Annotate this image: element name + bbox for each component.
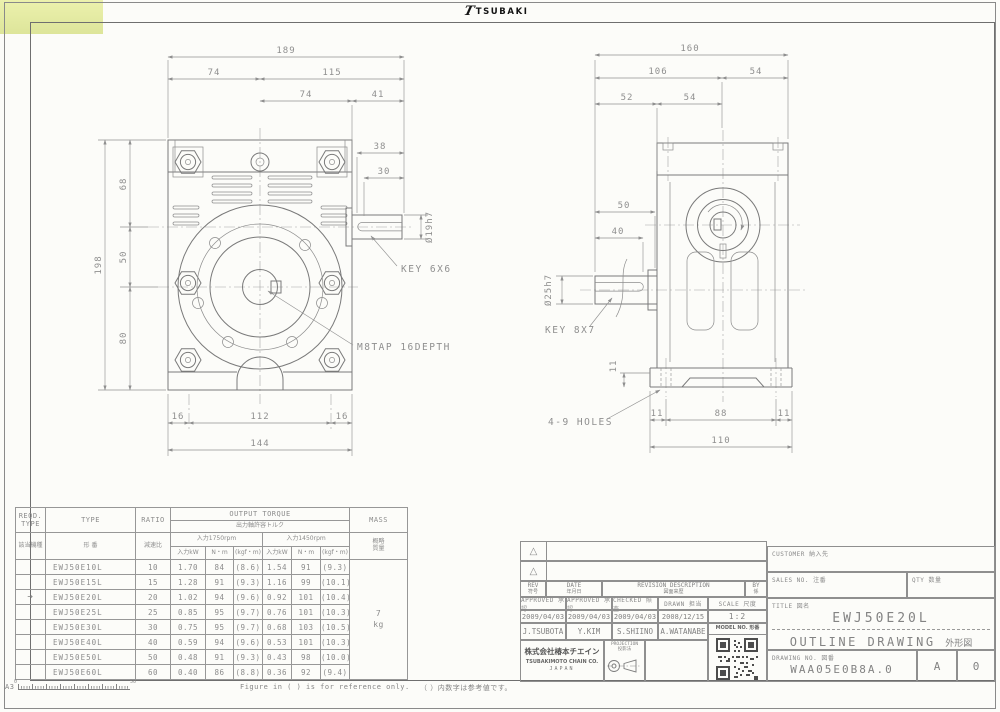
kw-cell: 0.76	[263, 605, 292, 620]
header-ratio-ja: 減速比	[136, 533, 171, 560]
dim-label: 160	[680, 44, 699, 54]
header-mass-ja: 概略 質量	[350, 533, 408, 560]
tsubaki-logo-mark-icon: T	[462, 4, 475, 19]
ratio-cell: 20	[136, 590, 171, 605]
kw-cell: 0.48	[171, 650, 206, 665]
revision-mark-cell: △	[520, 561, 547, 581]
model-cell: EWJ50E60L	[46, 665, 136, 680]
company-cell: 株式会社椿本チエイン TSUBAKIMOTO CHAIN CO. JAPAN	[520, 640, 604, 682]
mass-cell: 7kg	[350, 560, 408, 680]
dim-label: 198	[94, 255, 104, 274]
model-cell: EWJ50E50L	[46, 650, 136, 665]
drawing-sheet: T TSUBAKI	[0, 0, 1000, 712]
row-marker	[16, 560, 46, 575]
nm-cell: 98	[292, 650, 321, 665]
drawing-no-label: DRAWING NO. 図番	[768, 651, 916, 662]
dim-label: 11	[609, 360, 619, 373]
shaft-diameter-label: Ø25h7	[543, 274, 554, 306]
nm-cell: 101	[292, 635, 321, 650]
header-nm: N・m	[206, 547, 234, 560]
header-output-torque: OUTPUT TORQUE	[171, 508, 350, 521]
tap-label: M8TAP 16DEPTH	[357, 342, 451, 353]
kgfm-cell: (10.1)	[321, 575, 350, 590]
dim-label: 40	[612, 227, 625, 237]
empty-cell	[645, 640, 708, 682]
projection-label-ja: 投影法	[618, 647, 632, 652]
third-angle-projection-icon	[605, 653, 642, 677]
dim-label: 16	[336, 412, 349, 422]
dim-label: 106	[648, 67, 667, 77]
kw-cell: 0.40	[171, 665, 206, 680]
customer-cell: CUSTOMER 納入先	[767, 546, 995, 572]
drawing-title-ja: 外形図	[945, 639, 972, 649]
header-input-1750: 入力1750rpm	[171, 533, 263, 547]
sales-no-label: SALES NO. 注番	[768, 573, 906, 584]
kw-cell: 0.53	[263, 635, 292, 650]
nm-cell: 91	[206, 575, 234, 590]
sheet-rev-number-cell: 0	[957, 650, 995, 682]
dim-label: 189	[276, 46, 295, 56]
dim-label: 52	[621, 93, 634, 103]
header-output-torque-ja: 出力軸許容トルク	[171, 521, 350, 533]
revision-triangle-icon: △	[521, 562, 546, 580]
revision-mark-cell: △	[520, 541, 547, 561]
header-type-ja: 形 番	[46, 533, 136, 560]
kgfm-cell: (9.3)	[234, 575, 263, 590]
dim-label: 74	[208, 68, 221, 78]
model-cell: EWJ50E25L	[46, 605, 136, 620]
nm-cell: 103	[292, 620, 321, 635]
nm-cell: 86	[206, 665, 234, 680]
header-nm: N・m	[292, 547, 321, 560]
row-marker	[16, 620, 46, 635]
nm-cell: 91	[292, 560, 321, 575]
nm-cell: 91	[206, 650, 234, 665]
row-marker-arrow-icon: →	[16, 590, 46, 605]
kgfm-cell: (9.3)	[234, 650, 263, 665]
model-cell: EWJ50E40L	[46, 635, 136, 650]
dim-label: 50	[618, 201, 631, 211]
kw-cell: 0.59	[171, 635, 206, 650]
kgfm-cell: (9.6)	[234, 590, 263, 605]
by-header-cell: BY係	[745, 581, 767, 597]
checked-date-cell: 2009/04/03	[612, 610, 658, 623]
model-cell: EWJ50E15L	[46, 575, 136, 590]
header-kw: 入力kW	[171, 547, 206, 560]
shaft-diameter-label: Ø19h7	[424, 211, 435, 243]
kgfm-cell: (9.7)	[234, 605, 263, 620]
model-cell: EWJ50E20L	[46, 590, 136, 605]
table-row: EWJ50E50L 50 0.48 91 (9.3) 0.43 98 (10.0…	[16, 650, 408, 665]
ruler-zero-label: 0	[14, 679, 17, 685]
model-no-cell: MODEL NO. 形番	[708, 623, 767, 682]
customer-label: CUSTOMER 納入先	[768, 547, 994, 558]
dim-label: 74	[300, 90, 313, 100]
nm-cell: 101	[292, 590, 321, 605]
input-shaft	[346, 208, 402, 246]
output-torque-table: REQD. TYPE TYPE RATIO OUTPUT TORQUE MASS…	[15, 507, 408, 680]
kgfm-cell: (10.4)	[321, 590, 350, 605]
dim-label: 112	[250, 412, 269, 422]
row-marker	[16, 605, 46, 620]
kgfm-cell: (10.3)	[321, 605, 350, 620]
ratio-cell: 60	[136, 665, 171, 680]
approved1-label-cell: APPROVED 承認	[520, 597, 566, 610]
ratio-cell: 50	[136, 650, 171, 665]
reference-note-en: Figure in ( ) is for reference only.	[240, 683, 410, 691]
kw-cell: 0.68	[263, 620, 292, 635]
ratio-cell: 30	[136, 620, 171, 635]
front-view-drawing: 189 74 115 74 41 38 30 198 68 50 80 16 1…	[88, 33, 502, 475]
approved1-date-cell: 2009/04/03	[520, 610, 566, 623]
header-reqd-type-ja: 該当機種	[16, 533, 46, 560]
key-label: KEY 8X7	[545, 325, 596, 336]
dim-label: 50	[119, 251, 129, 264]
model-cell: EWJ50E30L	[46, 620, 136, 635]
drawn-label-cell: DRAWN 担当	[658, 597, 708, 610]
nm-cell: 99	[292, 575, 321, 590]
drawing-title-en: OUTLINE DRAWING	[790, 635, 936, 649]
approved2-label-cell: APPROVED 承認	[566, 597, 612, 610]
dim-label: 16	[172, 412, 185, 422]
table-row: EWJ50E60L 60 0.40 86 (8.8) 0.36 92 (9.4)	[16, 665, 408, 680]
header-mass: MASS	[350, 508, 408, 533]
model-cell: EWJ50E10L	[46, 560, 136, 575]
kw-cell: 1.02	[171, 590, 206, 605]
title-label: TITLE 図名	[768, 599, 994, 610]
table-row: EWJ50E10L 10 1.70 84 (8.6) 1.54 91 (9.3)…	[16, 560, 408, 575]
kgfm-cell: (9.3)	[321, 560, 350, 575]
dim-label: 54	[750, 67, 763, 77]
header-type: TYPE	[46, 508, 136, 533]
ratio-cell: 10	[136, 560, 171, 575]
qty-label: QTY 数量	[908, 573, 994, 584]
dim-label: 41	[372, 90, 385, 100]
mounting-feet	[650, 368, 792, 387]
revision-triangle-icon: △	[521, 542, 546, 560]
scale-value-cell: 1:2	[708, 610, 767, 623]
drawn-name-cell: A.WATANABE	[658, 623, 708, 640]
dim-label: 30	[378, 167, 391, 177]
kw-cell: 1.28	[171, 575, 206, 590]
kw-cell: 1.54	[263, 560, 292, 575]
header-kgfm: (kgf・m)	[234, 547, 263, 560]
projection-cell: PROJECTION 投影法	[604, 640, 645, 682]
kw-cell: 1.16	[263, 575, 292, 590]
kgfm-cell: (10.3)	[321, 635, 350, 650]
kgfm-cell: (8.8)	[234, 665, 263, 680]
nm-cell: 94	[206, 635, 234, 650]
holes-label: 4-9 HOLES	[548, 417, 613, 428]
row-marker	[16, 650, 46, 665]
front-view-dimensions: 189 74 115 74 41 38 30 198 68 50 80 16 1…	[94, 46, 452, 456]
header-kgfm: (kgf・m)	[321, 547, 350, 560]
tsubaki-logo-text: TSUBAKI	[476, 7, 529, 17]
scale-ruler	[18, 684, 130, 690]
hex-bolt-icon	[175, 151, 201, 174]
drawn-date-cell: 2008/12/15	[658, 610, 708, 623]
kgfm-cell: (8.6)	[234, 560, 263, 575]
model-no-label: MODEL NO. 形番	[709, 624, 766, 635]
row-marker	[16, 635, 46, 650]
dim-label: 38	[374, 142, 387, 152]
sheet-rev-letter-cell: A	[917, 650, 957, 682]
dim-label: 54	[684, 93, 697, 103]
ratio-cell: 40	[136, 635, 171, 650]
approved2-date-cell: 2009/04/03	[566, 610, 612, 623]
kgfm-cell: (10.0)	[321, 650, 350, 665]
nm-cell: 95	[206, 605, 234, 620]
dim-label: 11	[651, 409, 664, 419]
kgfm-cell: (9.6)	[234, 635, 263, 650]
kw-cell: 0.43	[263, 650, 292, 665]
company-name-ja: 株式会社椿本チエイン	[521, 646, 603, 657]
header-input-1450: 入力1450rpm	[263, 533, 350, 547]
kgfm-cell: (9.7)	[234, 620, 263, 635]
ruler-fifty-label: 50	[130, 679, 136, 685]
nm-cell: 84	[206, 560, 234, 575]
nm-cell: 101	[292, 605, 321, 620]
input-keyway	[714, 219, 721, 230]
side-view-drawing: 160 106 54 52 54 50 40 Ø25h7 11 88 11 11…	[538, 33, 850, 475]
nm-cell: 94	[206, 590, 234, 605]
kgfm-cell: (10.5)	[321, 620, 350, 635]
kw-cell: 0.92	[263, 590, 292, 605]
drawing-model-title: EWJ50E20L	[768, 611, 994, 626]
revision-row	[520, 541, 767, 561]
checked-name-cell: S.SHIINO	[612, 623, 658, 640]
gearbox-side-body	[595, 143, 792, 387]
table-row-selected: → EWJ50E20L 20 1.02 94 (9.6) 0.92 101 (1…	[16, 590, 408, 605]
row-marker	[16, 575, 46, 590]
approved1-name-cell: J.TSUBOTA	[520, 623, 566, 640]
tsubaki-logo: T TSUBAKI	[464, 4, 529, 19]
approved2-name-cell: Y.KIM	[566, 623, 612, 640]
qr-code	[716, 637, 758, 681]
dim-label: 11	[778, 409, 791, 419]
revision-row	[520, 561, 767, 581]
table-row: EWJ50E25L 25 0.85 95 (9.7) 0.76 101 (10.…	[16, 605, 408, 620]
by-label-ja: 係	[753, 590, 758, 596]
hex-bolt-icon	[175, 349, 201, 372]
kw-cell: 0.36	[263, 665, 292, 680]
drawing-no-cell: DRAWING NO. 図番 WAA05E0B8A.0	[767, 650, 917, 682]
kw-cell: 0.85	[171, 605, 206, 620]
dim-label: 144	[250, 439, 269, 449]
ratio-cell: 15	[136, 575, 171, 590]
hex-bolt-icon	[319, 151, 345, 174]
hex-bolt-icon	[319, 349, 345, 372]
company-name-en: TSUBAKIMOTO CHAIN CO.	[521, 659, 603, 665]
header-ratio: RATIO	[136, 508, 171, 533]
row-marker	[16, 665, 46, 680]
kgfm-cell: (9.4)	[321, 665, 350, 680]
sales-no-cell: SALES NO. 注番	[767, 572, 907, 598]
side-view-dimensions: 160 106 54 52 54 50 40 Ø25h7 11 88 11 11…	[543, 44, 792, 453]
drawing-number: WAA05E0B8A.0	[768, 663, 916, 676]
title-cell: TITLE 図名 EWJ50E20L OUTLINE DRAWING 外形図	[767, 598, 995, 650]
table-row: EWJ50E15L 15 1.28 91 (9.3) 1.16 99 (10.1…	[16, 575, 408, 590]
qty-cell: QTY 数量	[907, 572, 995, 598]
reference-note-ja: （ ）内数字は参考値です。	[420, 683, 512, 693]
dim-label: 68	[119, 178, 129, 191]
dim-label: 110	[711, 436, 730, 446]
dim-label: 80	[119, 332, 129, 345]
kw-cell: 0.75	[171, 620, 206, 635]
table-row: EWJ50E40L 40 0.59 94 (9.6) 0.53 101 (10.…	[16, 635, 408, 650]
header-reqd-type: REQD. TYPE	[16, 508, 46, 533]
kw-cell: 1.70	[171, 560, 206, 575]
checked-label-cell: CHECKED 照査	[612, 597, 658, 610]
revision-description-label-ja: 図面来歴	[663, 590, 683, 596]
ratio-cell: 25	[136, 605, 171, 620]
key-label: KEY 6X6	[401, 264, 452, 275]
dim-label: 115	[322, 68, 341, 78]
nm-cell: 92	[292, 665, 321, 680]
scale-label-cell: SCALE 尺度	[708, 597, 767, 610]
company-country: JAPAN	[521, 666, 603, 672]
dim-label: 88	[715, 409, 728, 419]
header-kw: 入力kW	[263, 547, 292, 560]
nm-cell: 95	[206, 620, 234, 635]
table-row: EWJ50E30L 30 0.75 95 (9.7) 0.68 103 (10.…	[16, 620, 408, 635]
